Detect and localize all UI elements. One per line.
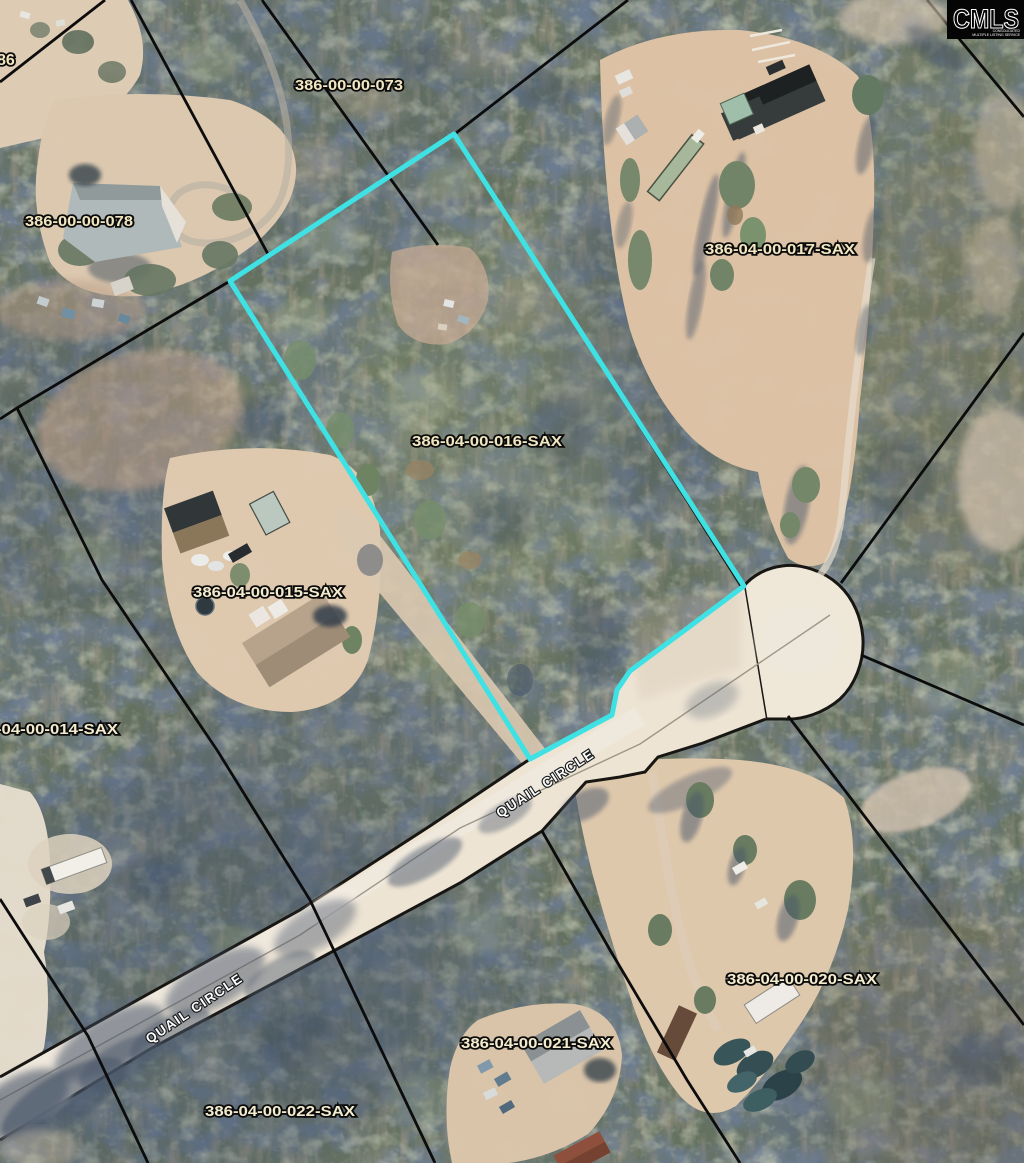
svg-text:386-04-00-015-SAX: 386-04-00-015-SAX bbox=[193, 584, 343, 601]
svg-text:386-04-00-022-SAX: 386-04-00-022-SAX bbox=[205, 1103, 355, 1120]
svg-text:386-04-00-014-SAX: 386-04-00-014-SAX bbox=[0, 721, 118, 738]
svg-text:386-04-00-021-SAX: 386-04-00-021-SAX bbox=[461, 1035, 611, 1052]
svg-text:86: 86 bbox=[0, 52, 15, 69]
svg-text:386-04-00-017-SAX: 386-04-00-017-SAX bbox=[705, 241, 855, 258]
svg-text:386-04-00-020-SAX: 386-04-00-020-SAX bbox=[727, 971, 877, 988]
svg-text:386-00-00-073: 386-00-00-073 bbox=[295, 77, 403, 94]
svg-text:386-00-00-078: 386-00-00-078 bbox=[25, 213, 133, 230]
svg-text:386-04-00-016-SAX: 386-04-00-016-SAX bbox=[412, 433, 562, 450]
svg-text:MULTIPLE LISTING SERVICE: MULTIPLE LISTING SERVICE bbox=[972, 33, 1020, 37]
